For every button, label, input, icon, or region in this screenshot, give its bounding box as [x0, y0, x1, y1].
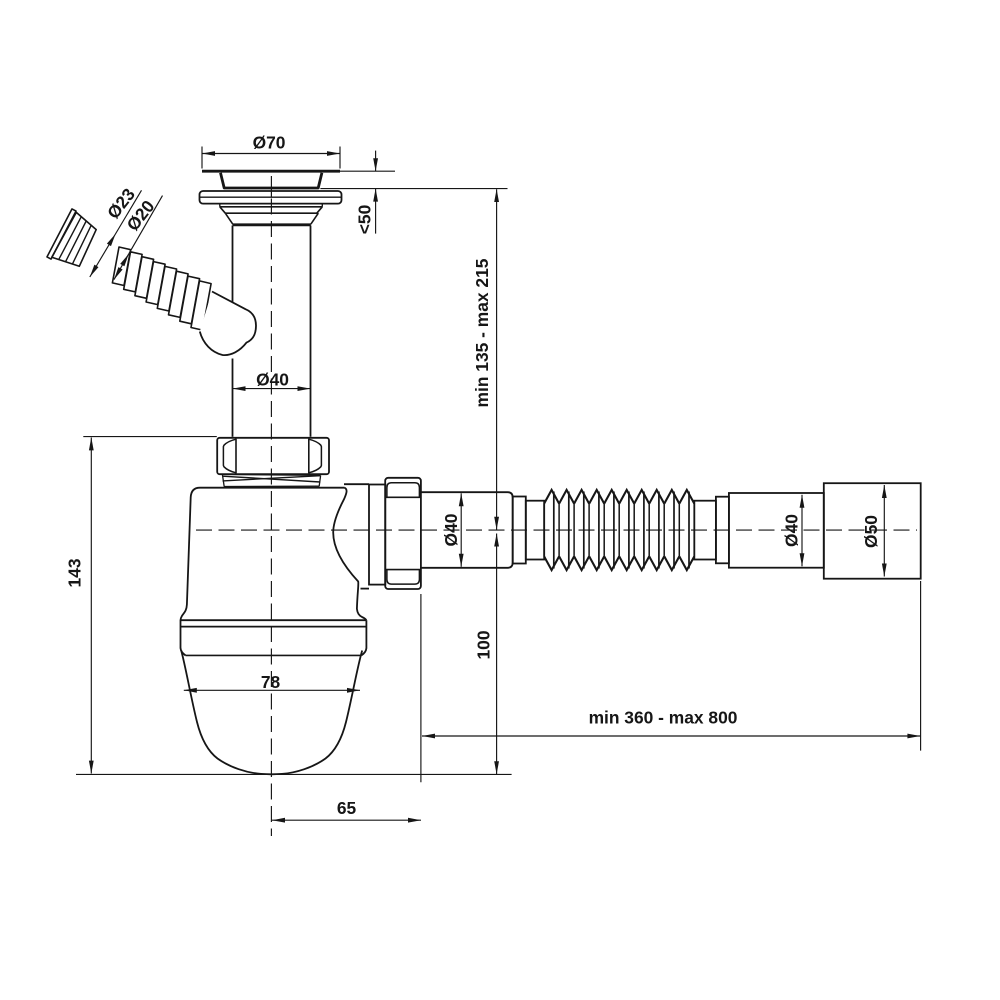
svg-text:Ø40: Ø40 [782, 514, 802, 547]
svg-text:143: 143 [65, 558, 85, 587]
svg-text:min 135 - max 215: min 135 - max 215 [472, 258, 492, 407]
svg-text:Ø40: Ø40 [441, 514, 461, 547]
svg-text:min 360 - max 800: min 360 - max 800 [589, 708, 738, 728]
svg-text:100: 100 [474, 630, 494, 659]
svg-text:Ø40: Ø40 [256, 370, 289, 390]
svg-text:Ø50: Ø50 [861, 515, 881, 548]
svg-text:Ø70: Ø70 [253, 133, 286, 153]
svg-text:78: 78 [261, 672, 281, 692]
svg-text:<50: <50 [355, 205, 375, 235]
svg-text:65: 65 [337, 798, 357, 818]
